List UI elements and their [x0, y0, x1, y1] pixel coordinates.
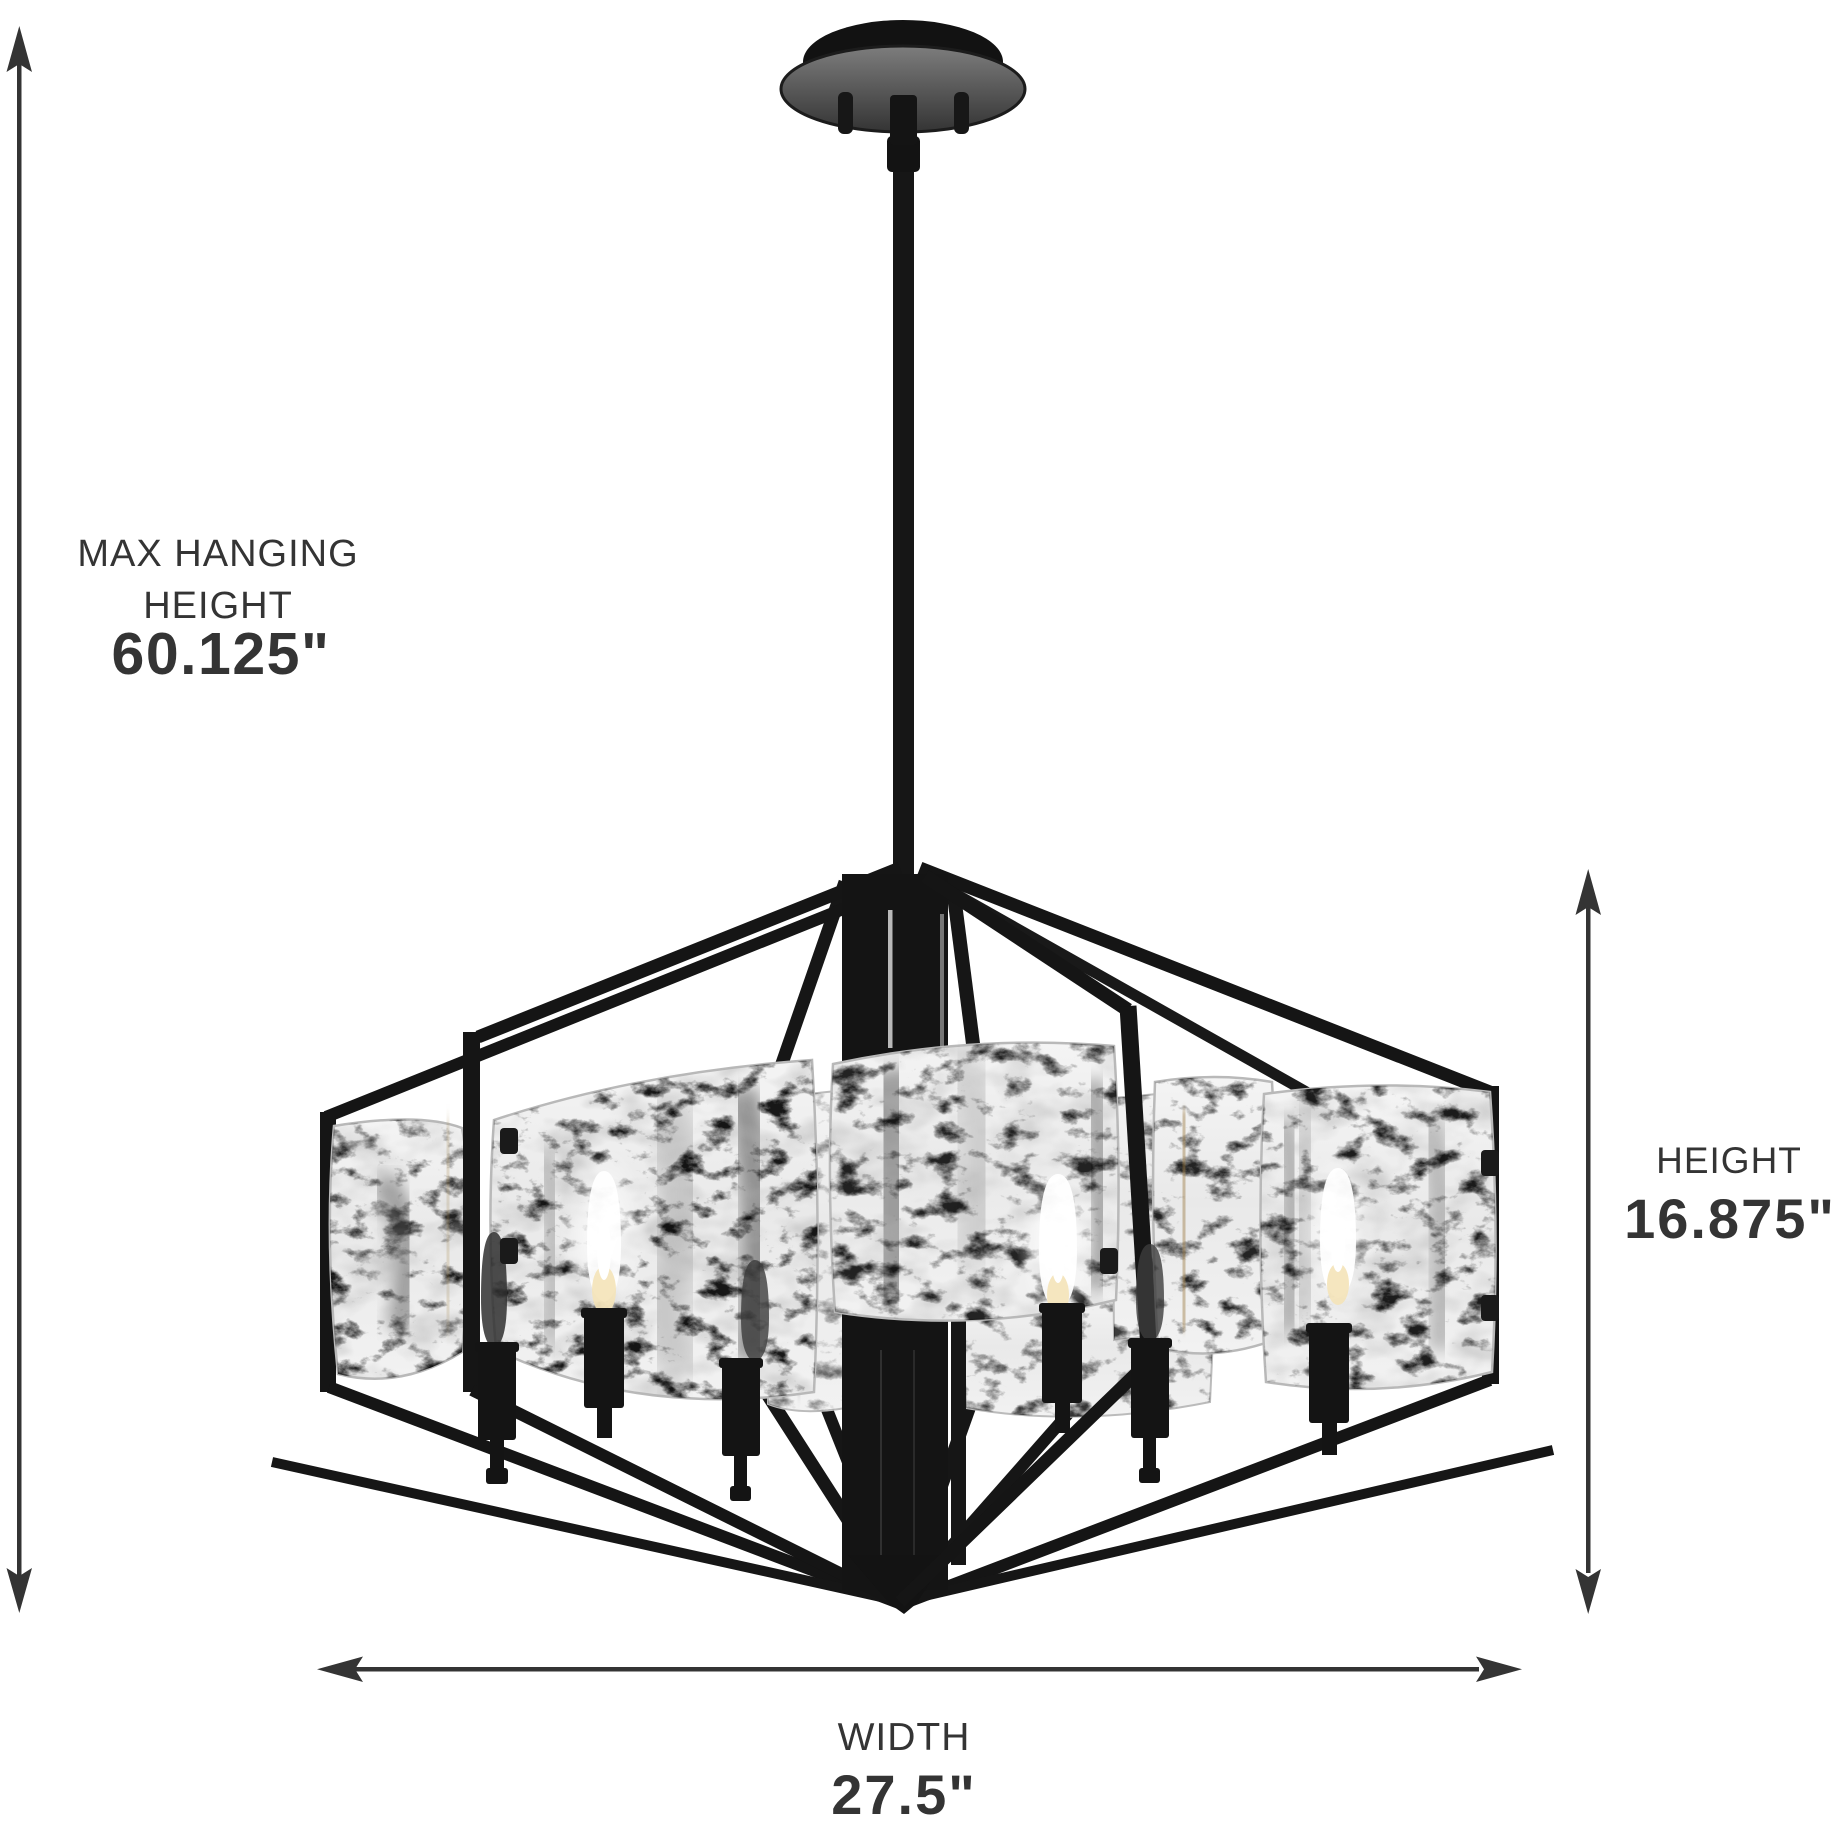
svg-text:HEIGHT: HEIGHT — [1656, 1140, 1802, 1181]
svg-text:16.875": 16.875" — [1624, 1187, 1832, 1250]
svg-text:WIDTH: WIDTH — [838, 1716, 971, 1759]
svg-text:60.125": 60.125" — [112, 621, 331, 687]
svg-text:MAX HANGING: MAX HANGING — [77, 533, 358, 575]
svg-text:27.5": 27.5" — [831, 1763, 977, 1826]
